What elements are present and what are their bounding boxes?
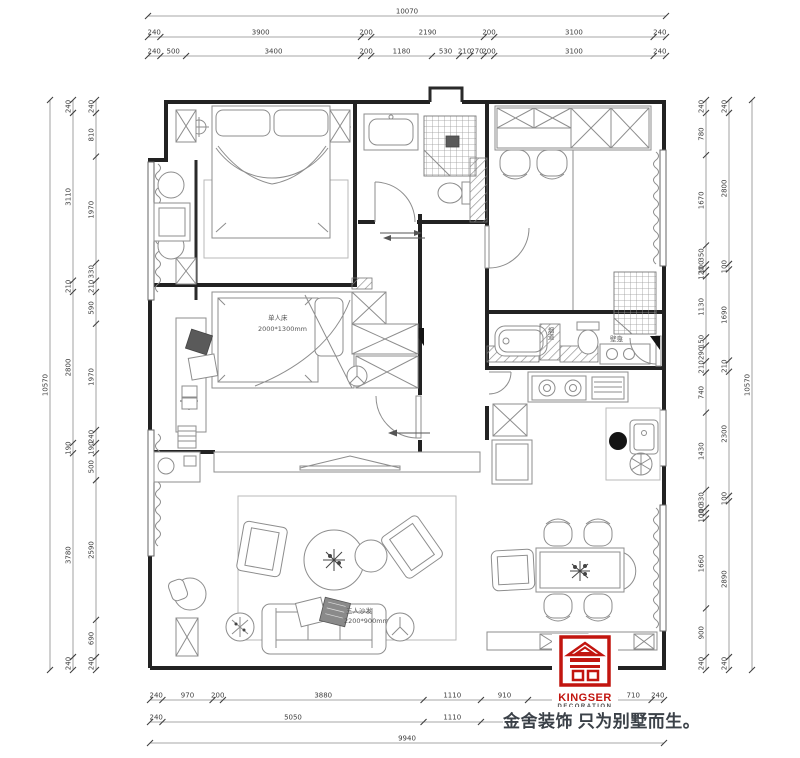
toilet-tank — [462, 182, 470, 204]
dim-label: 240 — [721, 657, 729, 670]
dim-label: 350 — [698, 248, 706, 261]
dim-label: 240 — [88, 100, 96, 113]
wall-hatch — [352, 278, 372, 289]
tv-console — [214, 452, 480, 472]
paper — [188, 354, 217, 380]
curtain — [654, 508, 659, 628]
living-room: 三人沙发 2200*900mm — [154, 452, 480, 656]
dining-room — [487, 519, 657, 650]
dim-label: 2890 — [721, 570, 729, 588]
dim-label: 1660 — [698, 555, 706, 573]
dim-label: 2800 — [721, 180, 729, 198]
dim-label: 200 — [359, 48, 372, 56]
dim-label: 590 — [88, 301, 96, 314]
door-swing — [489, 228, 529, 268]
dim-label: 740 — [698, 386, 706, 399]
dim-label: 1670 — [698, 191, 706, 209]
dim-label: 900 — [698, 626, 706, 639]
armchair — [236, 521, 288, 578]
shelf — [178, 426, 196, 448]
dim-label: 190 — [88, 441, 96, 454]
floor-drain — [446, 136, 459, 147]
fan-icon — [630, 453, 652, 475]
dim-label: 240 — [698, 657, 706, 670]
bed-label: 单人床 — [268, 313, 288, 322]
dim-label: 240 — [150, 692, 163, 700]
dining-chair — [584, 594, 612, 621]
dim-label: 290 — [698, 347, 706, 360]
dim-label: 5050 — [284, 714, 302, 722]
dim-label: 240 — [698, 100, 706, 113]
door-leaf — [485, 226, 489, 268]
dim-label: 2190 — [419, 29, 437, 37]
dim-label: 330 — [88, 265, 96, 278]
dim-label: 120 — [698, 266, 706, 279]
door-swing — [375, 182, 415, 222]
dim-label: 200 — [359, 29, 372, 37]
dining-chair — [544, 519, 572, 546]
dim-label: 10570 — [42, 374, 50, 396]
dim-label: 210 — [65, 280, 73, 293]
dining-chair — [584, 519, 612, 546]
dim-label: 2800 — [65, 359, 73, 377]
door-leaf — [416, 396, 421, 438]
dim-label: 780 — [698, 127, 706, 140]
dim-label: 240 — [721, 100, 729, 113]
side-table — [355, 540, 387, 572]
dim-label: 200 — [482, 48, 495, 56]
dim-label: 3100 — [565, 29, 583, 37]
dim-label: 240 — [88, 657, 96, 670]
toilet-tank — [577, 322, 599, 330]
dim-label: 10570 — [744, 374, 752, 396]
vanity — [600, 344, 650, 364]
armchair — [537, 150, 567, 179]
plant-icon — [323, 549, 345, 571]
dining-window — [660, 505, 666, 631]
dim-label: 200 — [211, 692, 224, 700]
door-swing — [489, 372, 511, 394]
dim-label: 530 — [439, 48, 452, 56]
dim-label: 1110 — [443, 692, 461, 700]
floorplan-canvas: 单人床 2000*1300mm — [0, 0, 800, 758]
dim-label: 240 — [88, 430, 96, 443]
sofa-label: 三人沙发 — [346, 606, 373, 615]
side-table-plant — [226, 613, 254, 641]
dim-label: 9940 — [398, 735, 416, 743]
door-marker — [650, 336, 660, 350]
dim-label: 3780 — [65, 546, 73, 564]
dim-label: 690 — [88, 632, 96, 645]
living-window — [148, 430, 154, 556]
balcony — [154, 172, 190, 259]
dim-label: 100 — [721, 260, 729, 273]
dim-label: 1430 — [698, 442, 706, 460]
toilet — [438, 183, 462, 203]
dim-label: 810 — [88, 128, 96, 141]
dim-label: 240 — [65, 657, 73, 670]
pillow — [315, 298, 343, 356]
dim-label: 200 — [482, 29, 495, 37]
side-table — [386, 613, 414, 641]
flue-label: 烟道 — [546, 326, 554, 342]
dim-label: 1130 — [698, 298, 706, 316]
dim-label: 100 — [721, 492, 729, 505]
wardrobe — [347, 292, 418, 388]
sofa-size-label: 2200*900mm — [344, 617, 389, 625]
kitchen-window — [660, 410, 666, 466]
dim-label: 210 — [698, 360, 706, 373]
dim-label: 240 — [65, 100, 73, 113]
master-bedroom — [176, 106, 351, 284]
brand-name: KINGSER — [552, 693, 618, 704]
balcony-window — [148, 162, 154, 300]
dining-chair — [544, 594, 572, 621]
armchair — [380, 514, 445, 580]
dim-label: 210 — [721, 359, 729, 372]
floorplan-drawing: 单人床 2000*1300mm — [0, 0, 800, 758]
balcony-chair — [158, 172, 184, 198]
dining-armchair — [491, 549, 535, 591]
dim-label: 210 — [88, 280, 96, 293]
dim-label: 1970 — [88, 201, 96, 219]
dim-label: 240 — [653, 48, 666, 56]
dim-label: 1180 — [393, 48, 411, 56]
sofa — [262, 597, 386, 654]
dim-label: 100 — [698, 509, 706, 522]
dim-label: 150 — [698, 335, 706, 348]
dim-label: 1690 — [721, 306, 729, 324]
dim-label: 2590 — [88, 541, 96, 559]
dim-label: 970 — [181, 692, 194, 700]
dim-label: 240 — [150, 714, 163, 722]
kingser-emblem-icon — [558, 634, 612, 688]
fan-icon — [347, 366, 367, 386]
dim-label: 2300 — [721, 425, 729, 443]
double-bed — [212, 106, 330, 238]
toilet — [578, 330, 598, 354]
stool — [609, 432, 627, 450]
armchair — [500, 150, 530, 179]
kitchen — [489, 372, 660, 484]
dim-label: 240 — [653, 29, 666, 37]
dim-label: 3100 — [565, 48, 583, 56]
curtain — [654, 152, 659, 264]
dim-label: 1110 — [443, 714, 461, 722]
dim-label: 3110 — [65, 188, 73, 206]
dim-label: 710 — [627, 692, 640, 700]
bed-size-label: 2000*1300mm — [258, 325, 307, 333]
bedroom-window — [660, 150, 666, 266]
dim-label: 910 — [498, 692, 511, 700]
fridge — [492, 440, 532, 484]
dim-label: 10070 — [396, 8, 418, 16]
dim-label: 500 — [167, 48, 180, 56]
shower-area — [614, 272, 656, 334]
dim-label: 3400 — [265, 48, 283, 56]
dim-label: 190 — [65, 441, 73, 454]
kingser-logo: KINGSER DECORATION — [552, 634, 618, 711]
dim-label: 330 — [698, 492, 706, 505]
dim-label: 1970 — [88, 368, 96, 386]
brand-tagline: 金舍装饰 只为别墅而生。 — [503, 707, 703, 732]
dim-label: 500 — [88, 460, 96, 473]
niche-label: 壁龛 — [610, 334, 624, 343]
dim-label: 3900 — [252, 29, 270, 37]
dim-label: 240 — [651, 692, 664, 700]
dim-label: 240 — [147, 29, 160, 37]
dim-label: 3880 — [314, 692, 332, 700]
desk-chair — [185, 329, 212, 355]
dim-label: 240 — [147, 48, 160, 56]
